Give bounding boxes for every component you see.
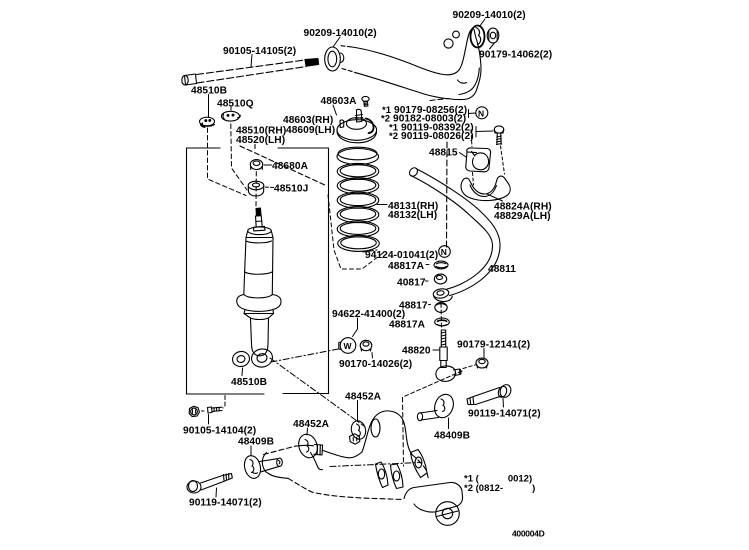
svg-text:48452A: 48452A	[345, 392, 382, 403]
svg-text:48609(LH): 48609(LH)	[286, 125, 335, 136]
svg-text:94622-41400(2): 94622-41400(2)	[332, 309, 405, 320]
svg-text:40817: 40817	[397, 278, 426, 289]
svg-text:90119-08026(2): 90119-08026(2)	[401, 131, 474, 142]
svg-text:48817A: 48817A	[389, 320, 426, 331]
svg-text:94124-01041(2): 94124-01041(2)	[365, 250, 438, 261]
svg-text:48510B: 48510B	[191, 86, 227, 97]
svg-text:48811: 48811	[488, 264, 516, 275]
svg-text:48829A(LH): 48829A(LH)	[494, 211, 551, 222]
svg-text:90105-14105(2): 90105-14105(2)	[223, 46, 296, 57]
svg-text:90105-14104(2): 90105-14104(2)	[183, 426, 256, 437]
svg-text:90179-14062(2): 90179-14062(2)	[479, 50, 552, 61]
svg-text:90209-14010(2): 90209-14010(2)	[453, 10, 526, 21]
svg-text:48820: 48820	[402, 346, 431, 357]
svg-text:48510B: 48510B	[231, 377, 267, 388]
svg-text:48815: 48815	[429, 148, 458, 159]
svg-text:W: W	[344, 341, 353, 351]
svg-text:48510J: 48510J	[274, 184, 308, 195]
svg-text:400004D: 400004D	[512, 529, 545, 539]
svg-text:48520(LH): 48520(LH)	[236, 135, 285, 146]
svg-text:90170-14026(2): 90170-14026(2)	[339, 359, 412, 370]
svg-text:*2 (0812- ): *2 (0812- )	[464, 483, 535, 494]
svg-text:48409B: 48409B	[434, 431, 470, 442]
svg-text:90119-14071(2): 90119-14071(2)	[189, 498, 262, 509]
svg-text:*2: *2	[389, 131, 398, 142]
svg-text:48409B: 48409B	[238, 437, 274, 448]
svg-text:N: N	[441, 247, 447, 257]
svg-text:48132(LH): 48132(LH)	[388, 210, 437, 221]
svg-text:90209-14010(2): 90209-14010(2)	[304, 28, 377, 39]
svg-text:48680A: 48680A	[272, 161, 309, 172]
svg-text:48603A: 48603A	[321, 96, 358, 107]
svg-text:48510Q: 48510Q	[217, 99, 254, 110]
svg-text:N: N	[478, 108, 484, 118]
svg-text:48452A: 48452A	[293, 419, 330, 430]
svg-text:90179-12141(2): 90179-12141(2)	[457, 340, 530, 351]
svg-text:48817A: 48817A	[388, 261, 425, 272]
svg-text:90119-14071(2): 90119-14071(2)	[468, 409, 541, 420]
